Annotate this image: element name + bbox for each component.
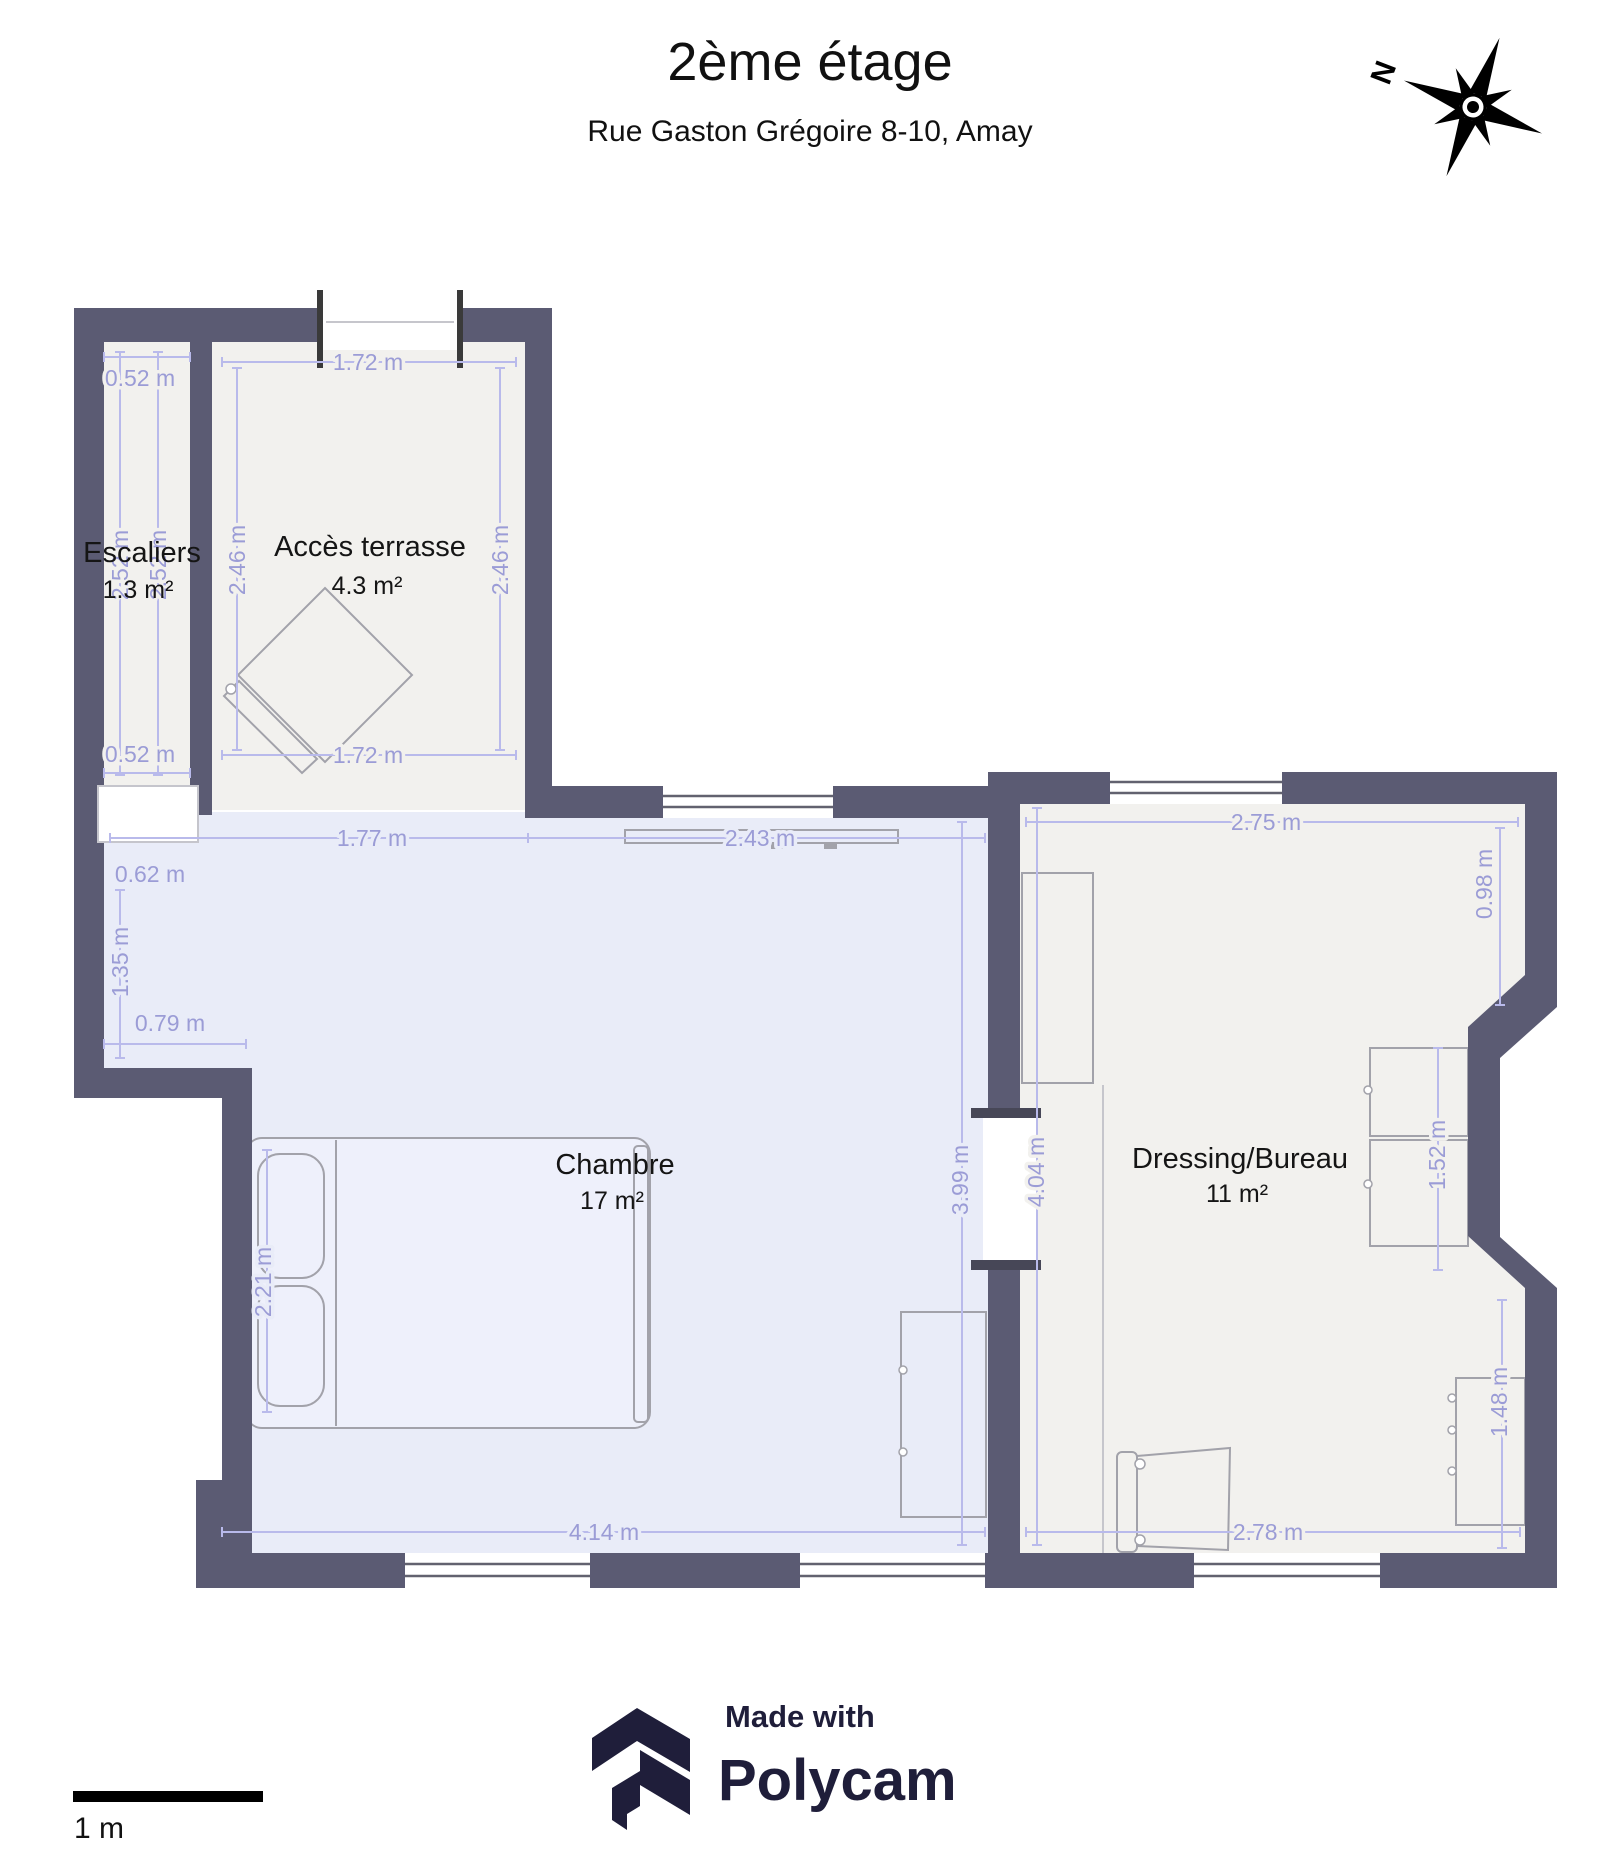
dim-stairs-top: 0.52 m <box>105 365 175 391</box>
dim-terrace-left: 2.46 m <box>224 525 250 595</box>
dim-alcove-width: 0.62 m <box>115 861 185 887</box>
room-terrasse-area: 4.3 m² <box>332 572 403 600</box>
compass-north-label: N <box>1365 57 1404 89</box>
room-chambre-name: Chambre <box>555 1149 674 1181</box>
room-escaliers-area: 1.3 m² <box>103 576 174 604</box>
window-chambre-bottom-left <box>405 1553 590 1588</box>
polycam-wordmark: Polycam <box>718 1748 957 1813</box>
window-chambre-top <box>663 786 833 818</box>
dim-dressing-right-top: 0.98 m <box>1471 849 1497 919</box>
dim-step-width: 0.79 m <box>135 1010 205 1036</box>
scale-bar-rule <box>73 1791 263 1802</box>
window-dressing-bottom <box>1194 1553 1380 1588</box>
dim-dressing-right-bottom: 1.48 m <box>1486 1367 1512 1437</box>
polycam-logo-icon <box>592 1708 690 1830</box>
dim-dressing-right-mid: 1.52 m <box>1424 1120 1450 1190</box>
dim-chambre-bottom: 4.14 m <box>569 1519 639 1545</box>
stairs-door <box>98 786 198 842</box>
dim-bed-length: 2.21 m <box>250 1247 276 1317</box>
dim-stairs-bottom: 0.52 m <box>105 741 175 767</box>
dim-chambre-top-left: 1.77 m <box>337 825 407 851</box>
dim-terrace-right: 2.46 m <box>487 525 513 595</box>
page-title: 2ème étage <box>667 32 952 92</box>
window-dressing-top <box>1110 772 1282 804</box>
window-chambre-bottom-right <box>800 1553 985 1588</box>
dim-terrace-top: 1.72 m <box>333 349 403 375</box>
dim-terrace-bottom: 1.72 m <box>333 742 403 768</box>
page-subtitle: Rue Gaston Grégoire 8-10, Amay <box>587 115 1032 148</box>
made-with-label: Made with <box>725 1699 875 1734</box>
dim-alcove-height: 1.35 m <box>107 927 133 997</box>
room-dressing-area: 11 m² <box>1206 1180 1268 1208</box>
room-terrasse-name: Accès terrasse <box>274 531 466 563</box>
scale-bar: 1 m <box>73 1791 263 1845</box>
room-dressing-name: Dressing/Bureau <box>1132 1143 1348 1175</box>
dim-dressing-bottom: 2.78 m <box>1233 1519 1303 1545</box>
dim-dressing-left: 4.04 m <box>1023 1137 1049 1207</box>
dim-chambre-top-right: 2.43 m <box>725 825 795 851</box>
dim-chambre-right: 3.99 m <box>947 1145 973 1215</box>
room-escaliers-name: Escaliers <box>83 537 201 569</box>
room-chambre-area: 17 m² <box>580 1187 644 1215</box>
scale-bar-label: 1 m <box>74 1812 124 1845</box>
compass-icon: N <box>1342 0 1569 203</box>
floor-plan: 2ème étage Rue Gaston Grégoire 8-10, Ama… <box>0 0 1620 1870</box>
dim-dressing-top: 2.75 m <box>1231 809 1301 835</box>
bed <box>246 1138 650 1428</box>
